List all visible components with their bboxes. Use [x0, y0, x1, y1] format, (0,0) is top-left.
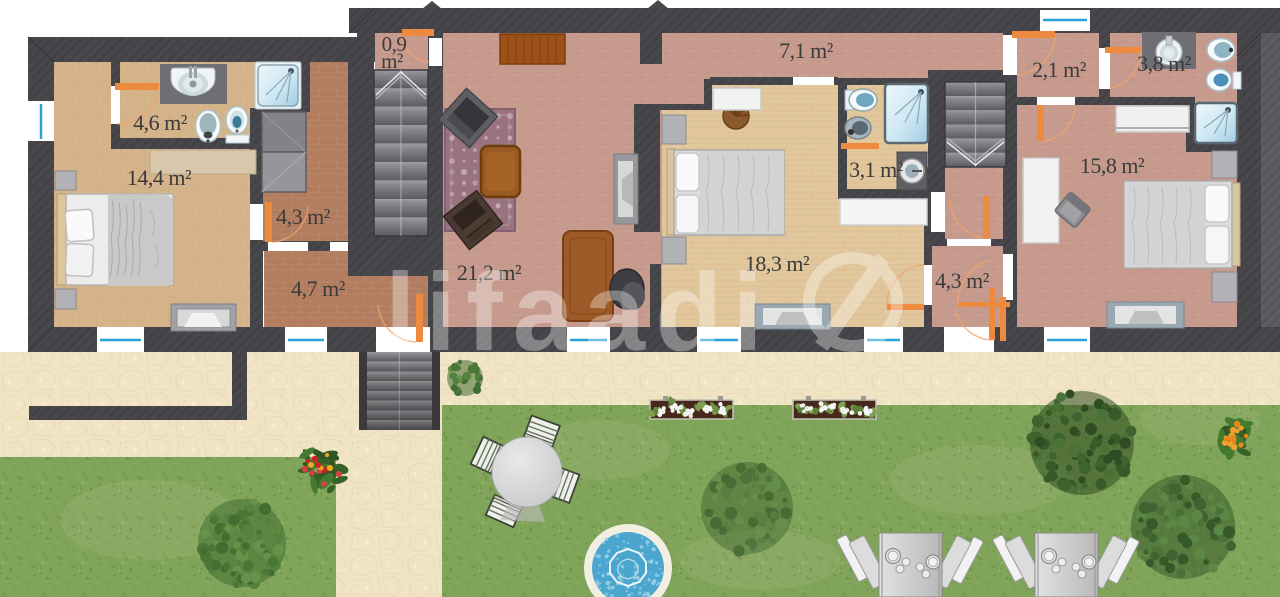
svg-text:m²: m² [381, 49, 403, 73]
svg-text:4,3 m²: 4,3 m² [276, 204, 331, 229]
svg-text:4,3 m²: 4,3 m² [935, 268, 990, 293]
svg-text:4,6 m²: 4,6 m² [133, 110, 188, 135]
svg-text:4,7 m²: 4,7 m² [291, 276, 346, 301]
svg-text:15,8 m²: 15,8 m² [1080, 153, 1145, 178]
svg-text:3,1 m²: 3,1 m² [849, 157, 904, 182]
svg-text:2,1 m²: 2,1 m² [1032, 57, 1087, 82]
svg-text:14,4 m²: 14,4 m² [127, 165, 192, 190]
svg-text:7,1 m²: 7,1 m² [779, 38, 834, 63]
svg-text:3,8 m²: 3,8 m² [1137, 51, 1192, 76]
svg-text:lifaadi: lifaadi [385, 251, 773, 374]
